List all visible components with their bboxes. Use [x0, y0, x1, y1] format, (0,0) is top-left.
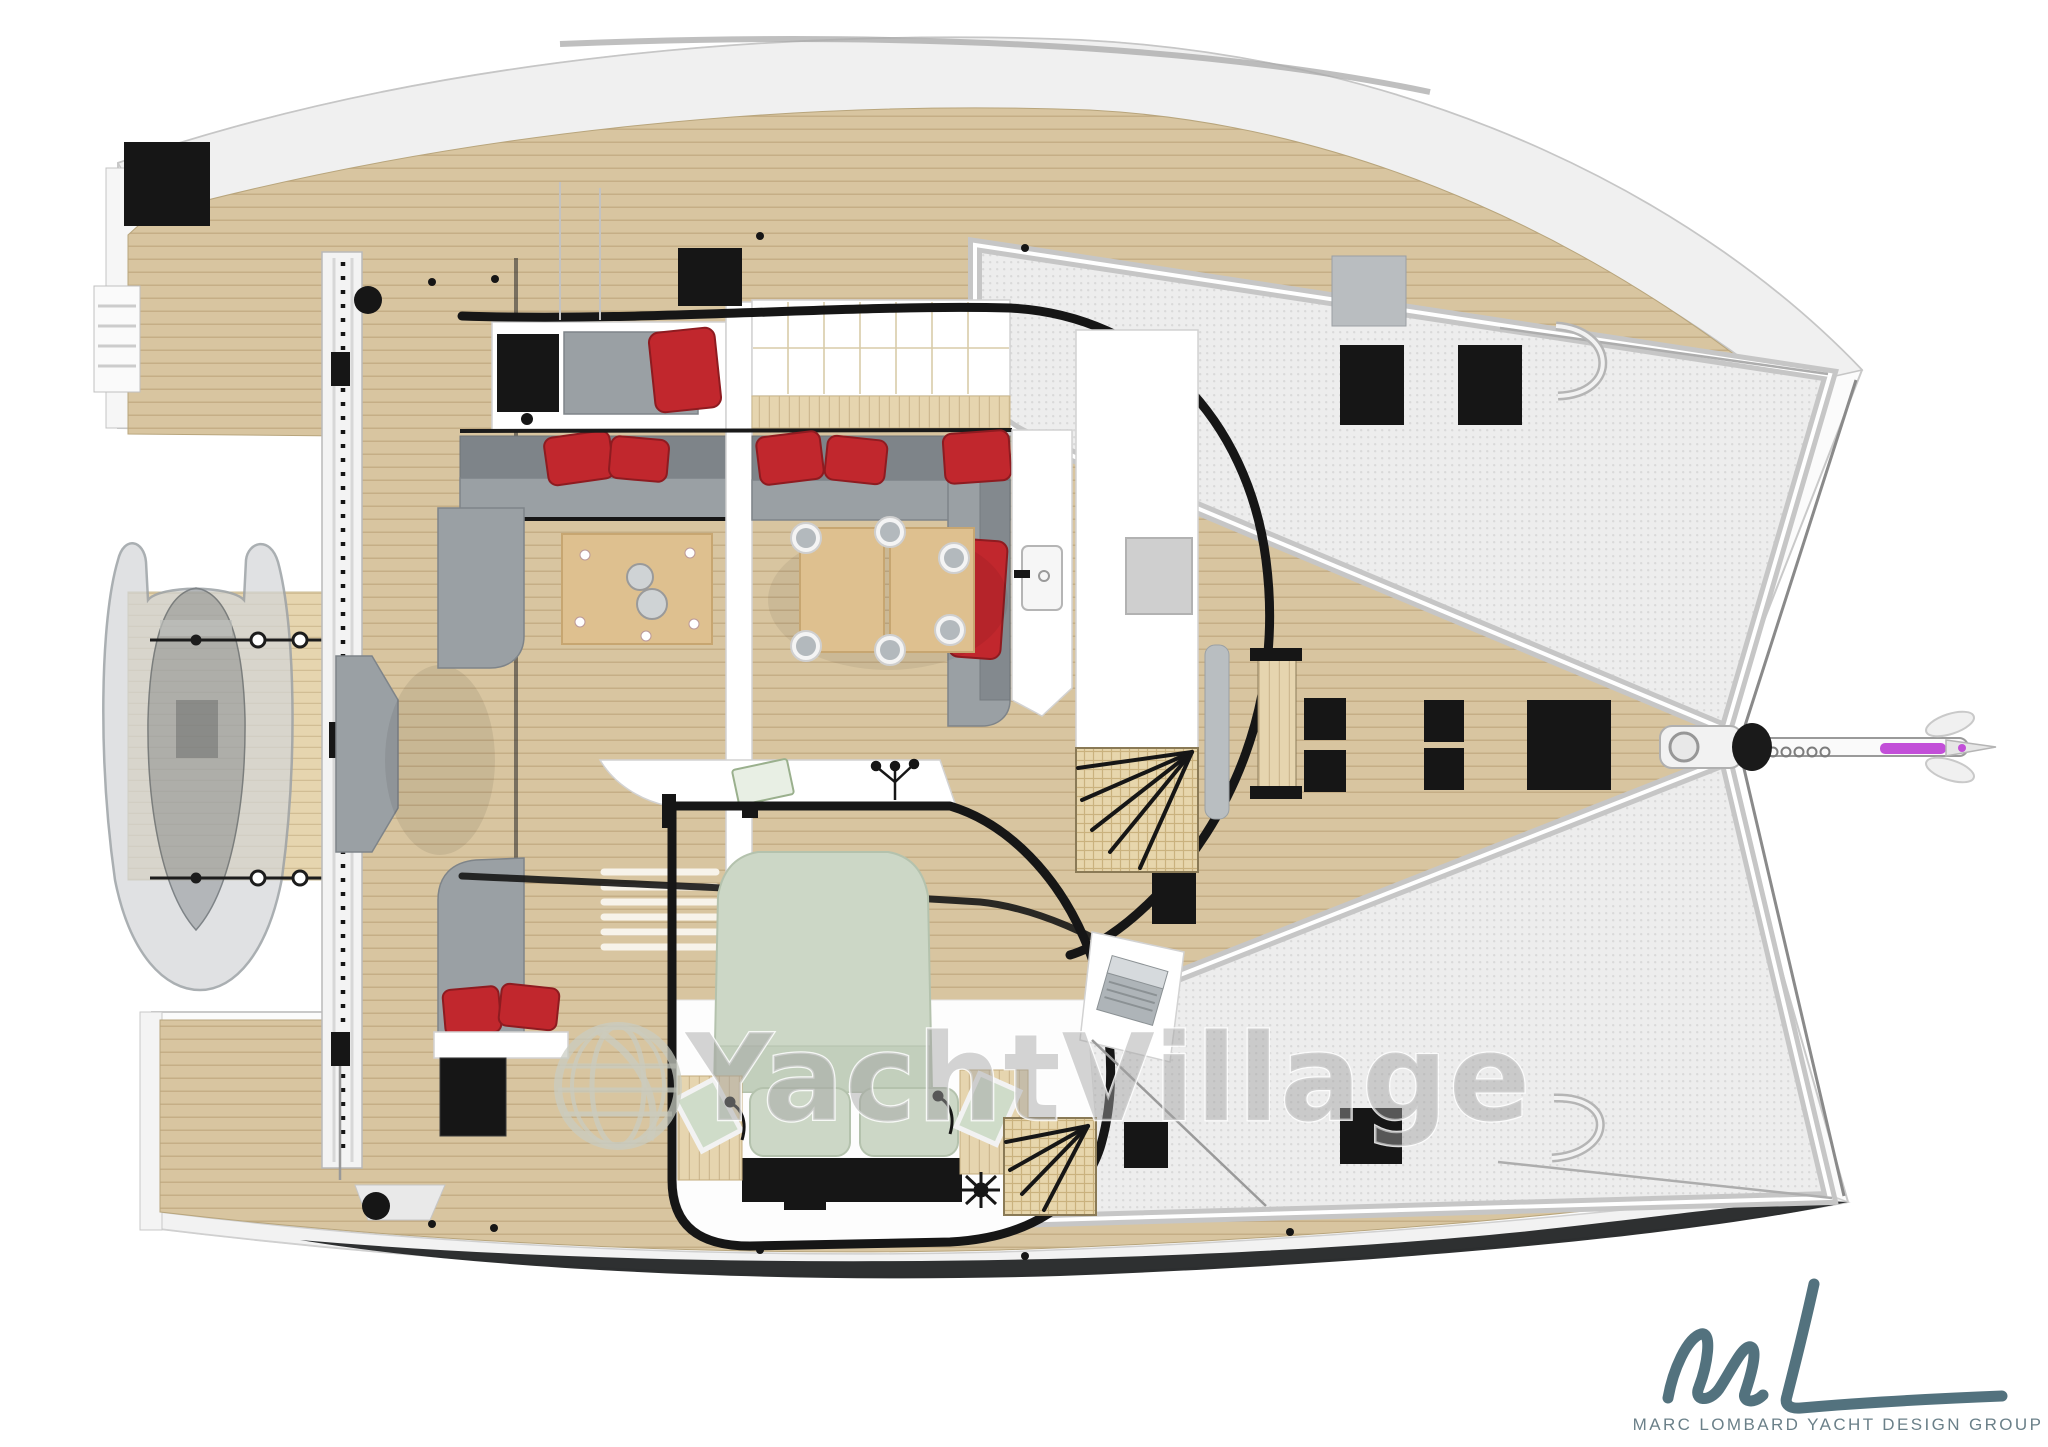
deck-hatch	[678, 248, 742, 306]
galley-counter-wood	[752, 396, 1010, 428]
deck-hatch	[124, 142, 210, 226]
windlass-icon	[1670, 733, 1698, 761]
dining-tables	[768, 517, 1008, 670]
catamaran-deck-plan: YachtVillage MARC LOMBARD YACHT DESIGN G…	[0, 0, 2048, 1447]
red-cushion	[824, 435, 888, 485]
sprit-tip	[1946, 740, 1996, 756]
deck-hatch	[784, 1162, 826, 1210]
ml-monogram-mark	[1668, 1284, 2002, 1408]
yacht-plan-page: YachtVillage MARC LOMBARD YACHT DESIGN G…	[0, 0, 2048, 1447]
starburst-stool-icon	[962, 1172, 1000, 1208]
deck-hatch	[1458, 345, 1522, 425]
coffee-table	[562, 534, 712, 644]
watermark-text: YachtVillage	[684, 1010, 1531, 1149]
deck-hatch	[1304, 750, 1346, 792]
red-cushion	[648, 327, 722, 413]
watermark: YachtVillage	[558, 1010, 1531, 1149]
deck-hatch	[1527, 700, 1611, 790]
tender-console	[176, 700, 218, 758]
tender	[103, 543, 292, 990]
davit-block-starboard	[331, 1032, 350, 1066]
deck-hatch-gray	[1126, 538, 1192, 614]
window-sill-track	[460, 430, 1012, 431]
designer-logo: MARC LOMBARD YACHT DESIGN GROUP	[1633, 1284, 2044, 1434]
deck-hatch	[1340, 345, 1404, 425]
red-cushion	[543, 430, 615, 487]
pod-shadow	[385, 665, 495, 855]
furler-drum-icon	[1732, 723, 1772, 771]
red-cushion	[755, 430, 824, 485]
starboard-transom	[140, 1012, 162, 1230]
deck-hatch	[1304, 698, 1346, 740]
red-cushion	[608, 436, 669, 483]
anchor-fluke	[1923, 753, 1977, 787]
swim-ladder	[94, 286, 140, 392]
winch-icon	[354, 286, 382, 314]
winch-icon	[362, 1192, 390, 1220]
cockpit-chaise	[438, 508, 524, 668]
galley	[752, 300, 1010, 428]
cockpit-grill	[497, 334, 559, 412]
red-cushion	[498, 983, 560, 1031]
stairs-forward	[1076, 748, 1198, 872]
deck-hatch	[1424, 748, 1464, 790]
deck-hatch	[1424, 700, 1464, 742]
logo-caption: MARC LOMBARD YACHT DESIGN GROUP	[1633, 1415, 2044, 1434]
faucet-icon	[1014, 570, 1030, 578]
red-cushion	[942, 430, 1011, 484]
liferaft-locker	[1332, 256, 1406, 326]
seat-base	[434, 1032, 568, 1058]
tender-thwart	[160, 620, 232, 636]
anchor-fluke	[1923, 707, 1977, 741]
bench-pad	[1205, 645, 1229, 819]
forward-bench	[1258, 660, 1296, 790]
headboard	[742, 1158, 962, 1202]
davit-block-port	[331, 352, 350, 386]
gennaker-tack	[1880, 743, 1946, 754]
red-cushion	[442, 986, 502, 1037]
deck-hatch	[440, 1058, 506, 1136]
